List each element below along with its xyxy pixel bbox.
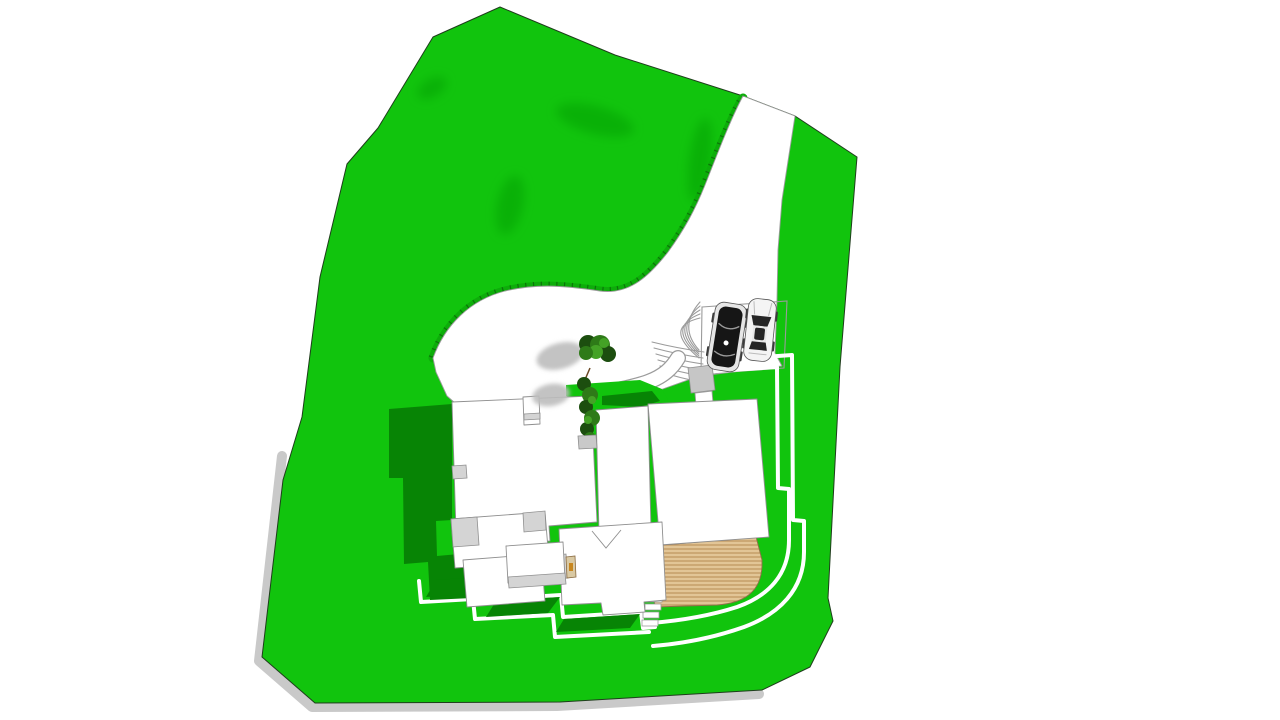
planter: [578, 435, 597, 449]
3d-viewport[interactable]: [0, 0, 1280, 720]
entry-landing: [688, 365, 715, 393]
east-wing-roof: [648, 399, 769, 545]
center-roof: [596, 406, 651, 533]
roof-vent: [452, 465, 467, 479]
site-plan-canvas: [0, 0, 1280, 720]
